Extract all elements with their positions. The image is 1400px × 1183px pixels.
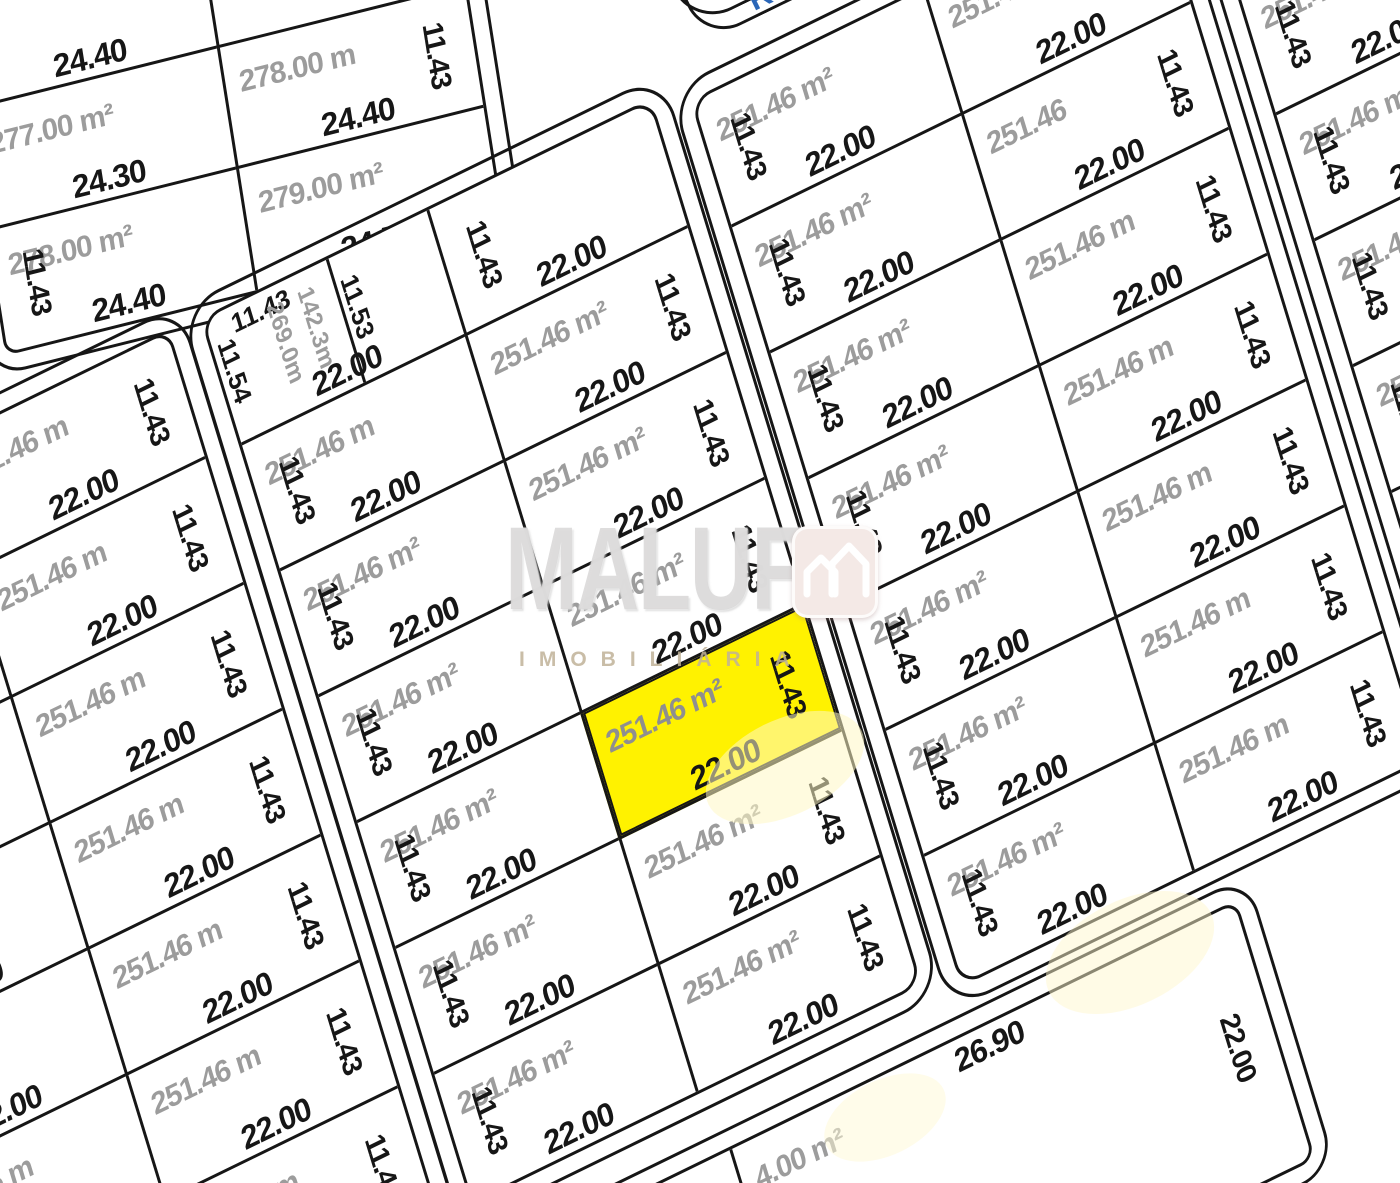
lot-area-label: 251.46 (983, 92, 1070, 163)
lot-depth-label: 11.43 (801, 771, 850, 849)
lot-width-label: 22.00 (1263, 762, 1341, 831)
lot-width-label: 24.40 (89, 276, 168, 331)
lot-width-label: 22.00 (1385, 129, 1400, 198)
lot-depth-label: 11.43 (1188, 169, 1237, 247)
lot-depth-label: 11.43 (1150, 43, 1199, 121)
lot-area-label: 251.46 m (0, 409, 72, 494)
lot-depth-label: 11.43 (357, 1129, 406, 1183)
lot-depth-label: 11.43 (1342, 674, 1391, 752)
lot-depth-label: 11.43 (1265, 421, 1314, 499)
lot-depth-label: 11.43 (319, 1002, 368, 1080)
lot-depth-label: 11.43 (1227, 295, 1276, 373)
lot-depth-label: 11.43 (647, 267, 696, 345)
lot-width-label: 22.00 (540, 1094, 618, 1163)
lot-area-label: 251.46 m (0, 1149, 37, 1183)
lot-width-label: 22.00 (764, 985, 842, 1054)
lot-depth-label: 11.43 (686, 393, 735, 471)
plat-map-canvas: Ru MALUF IMOBILIÁRIA 24.40277.00 m²24.30… (0, 0, 1400, 1183)
lot-depth-label: 11.43 (203, 624, 252, 702)
lot-depth-label: 11.43 (126, 372, 175, 450)
lot-depth-label: 11.43 (762, 645, 811, 723)
lot-depth-label: 11.43 (458, 215, 507, 293)
lot-depth-label: 11.43 (242, 750, 291, 828)
lot-depth-label: 11.43 (280, 876, 329, 954)
lot-area-label: 277.00 m² (0, 98, 116, 163)
lot-area-label: 251.46 (945, 0, 1032, 37)
lot-depth-label: 11.43 (415, 19, 457, 92)
lot-area-label: 278.00 m (237, 37, 358, 99)
lot-depth-label: 11.43 (724, 519, 773, 597)
lot-area-label: 279.00 m² (256, 156, 385, 221)
lot-area-label: 4.00 m² (751, 1122, 848, 1183)
lot-depth-label: 11.43 (165, 498, 214, 576)
lot-width-label: 22.00 (1033, 875, 1111, 944)
lot-depth-label: 11.43 (840, 898, 889, 976)
lot-depth-label: 11.43 (1304, 547, 1353, 625)
lot-frontage-label: 11.54 (211, 334, 258, 409)
lot-width-label: 26.90 (950, 1012, 1028, 1081)
lot-depth-label: 22.00 (1213, 1008, 1263, 1088)
lot-frontage-label: 11.53 (334, 269, 381, 344)
